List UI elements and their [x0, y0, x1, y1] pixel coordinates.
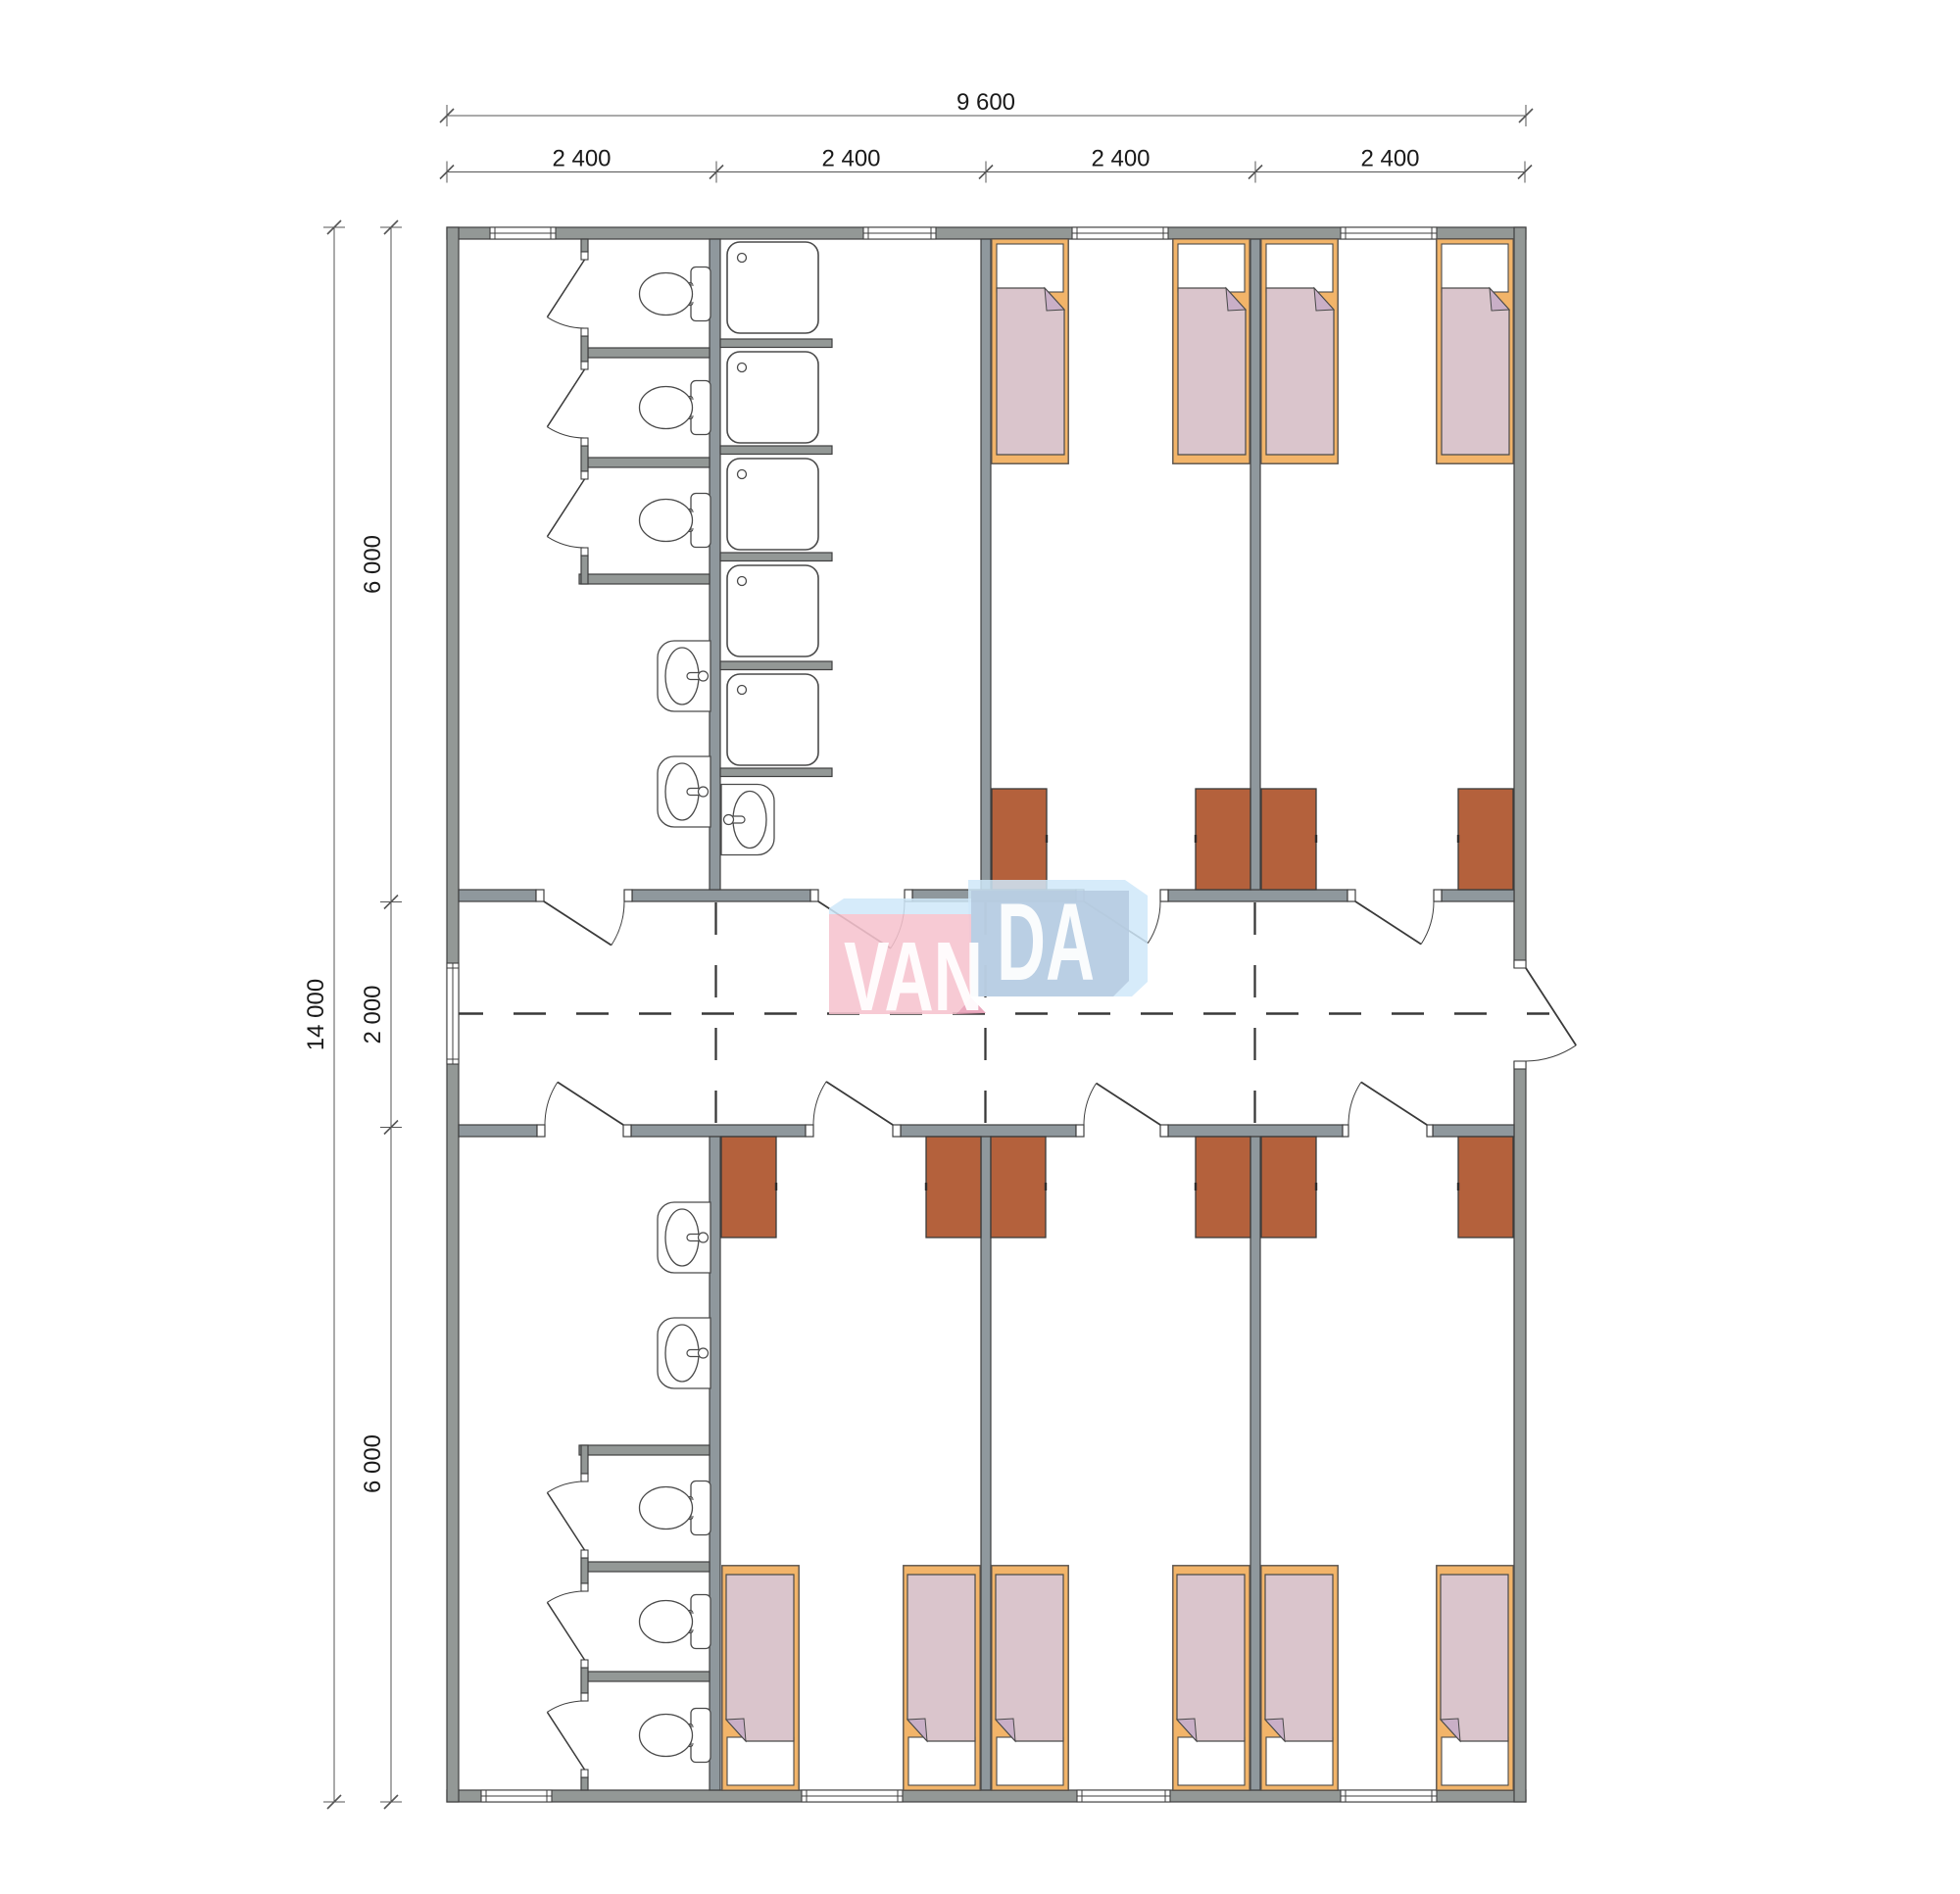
- svg-text:2 400: 2 400: [1360, 146, 1419, 172]
- svg-text:6 000: 6 000: [360, 535, 386, 594]
- svg-text:2 000: 2 000: [360, 985, 386, 1044]
- svg-text:DA: DA: [997, 881, 1095, 1003]
- svg-text:6 000: 6 000: [360, 1434, 386, 1493]
- svg-text:2 400: 2 400: [1091, 146, 1150, 172]
- svg-text:9 600: 9 600: [956, 89, 1015, 116]
- svg-text:VAN: VAN: [844, 922, 983, 1032]
- svg-text:14 000: 14 000: [303, 979, 329, 1050]
- svg-text:2 400: 2 400: [821, 146, 880, 172]
- svg-text:2 400: 2 400: [552, 146, 611, 172]
